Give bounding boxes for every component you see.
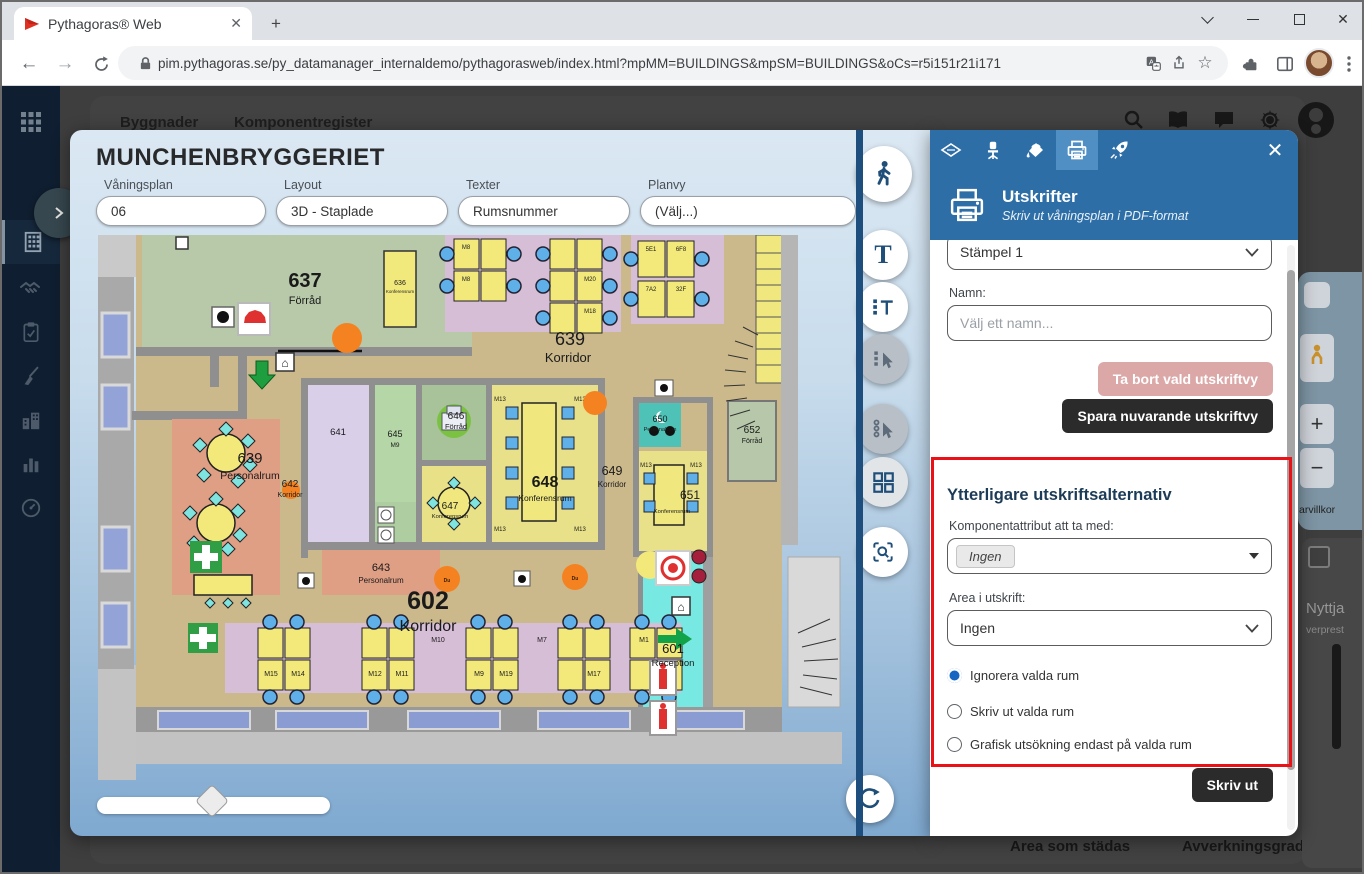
browser-titlebar: Pythagoras® Web ✕ + ✕ — [2, 2, 1362, 40]
reload-icon[interactable] — [88, 51, 114, 77]
svg-text:646: 646 — [448, 411, 465, 422]
walking-person-icon — [869, 159, 899, 189]
chevron-down-icon — [1245, 244, 1259, 260]
room-641 — [308, 385, 369, 542]
url-text: pim.pythagoras.se/py_datamanager_interna… — [158, 56, 1140, 71]
svg-text:Förråd: Förråd — [445, 422, 467, 431]
app-background: Byggnader Komponentregister Area som stä… — [2, 86, 1362, 872]
layout-selector: Layout 3D - Staplade — [276, 178, 448, 226]
svg-text:652: 652 — [744, 425, 761, 436]
rocket-icon — [1107, 138, 1131, 162]
svg-text:M8: M8 — [462, 277, 471, 283]
nav-tab-byggnader[interactable]: Byggnader — [120, 114, 198, 131]
print-panel: ✕ Utskrifter Skriv ut våningsplan i PDF-… — [930, 130, 1298, 836]
tab-furniture[interactable] — [972, 130, 1014, 170]
lock-icon — [132, 50, 158, 76]
svg-text:M9: M9 — [474, 671, 484, 678]
svg-text:5E1: 5E1 — [646, 247, 657, 253]
pythagoras-favicon — [24, 16, 40, 32]
svg-text:639: 639 — [555, 329, 585, 349]
panel-header: Utskrifter Skriv ut våningsplan i PDF-fo… — [930, 170, 1298, 240]
multi-select-button-disabled[interactable] — [858, 404, 908, 454]
tab-search-chevron-icon[interactable] — [1186, 2, 1228, 36]
svg-text:602: 602 — [407, 587, 449, 615]
panel-subtitle: Skriv ut våningsplan i PDF-format — [1002, 209, 1188, 223]
texts-selector-dropdown[interactable]: Rumsnummer — [458, 196, 630, 226]
area-label: Area i utskrift: — [949, 591, 1273, 605]
browser-tab[interactable]: Pythagoras® Web ✕ — [14, 7, 252, 40]
save-view-button[interactable]: Spara nuvarande utskriftvy — [1062, 399, 1273, 433]
grid-view-button[interactable] — [858, 457, 908, 507]
caret-down-icon — [1249, 553, 1259, 559]
svg-text:⌂: ⌂ — [281, 356, 288, 370]
minimize-button[interactable] — [1232, 2, 1274, 36]
svg-text:Förråd: Förråd — [742, 437, 763, 445]
apps-grid-icon[interactable] — [2, 100, 60, 144]
layout-selector-label: Layout — [284, 178, 448, 192]
circles-cursor-icon — [870, 416, 896, 442]
svg-text:⌂: ⌂ — [677, 600, 684, 614]
svg-text:636: 636 — [394, 280, 406, 287]
panel-scrollbar-thumb[interactable] — [1287, 270, 1295, 770]
forward-icon[interactable]: → — [52, 51, 78, 77]
svg-text:642: 642 — [282, 479, 299, 490]
sidebar-item-cleaning[interactable] — [2, 354, 60, 398]
component-attr-select[interactable]: Ingen — [947, 538, 1272, 574]
zoom-to-selection-button[interactable] — [858, 527, 908, 577]
paint-bucket-icon — [1023, 138, 1047, 162]
bookmark-star-icon[interactable]: ☆ — [1192, 50, 1218, 76]
dimmed-label-avverkning: Avverkningsgrad — [1182, 838, 1304, 855]
maximize-button[interactable] — [1278, 2, 1320, 36]
browser-window: Pythagoras® Web ✕ + ✕ ← → pim.pythagoras… — [0, 0, 1364, 874]
svg-text:M11: M11 — [395, 671, 408, 678]
tab-close-icon[interactable]: ✕ — [230, 15, 242, 32]
walkthrough-button[interactable] — [856, 146, 912, 202]
layers-diamond-icon — [939, 138, 963, 162]
map-checkbox[interactable] — [1304, 282, 1330, 308]
svg-text:Förråd: Förråd — [289, 295, 321, 307]
svg-text:M1: M1 — [639, 637, 649, 644]
svg-text:Personalrum: Personalrum — [644, 427, 677, 433]
close-window-button[interactable]: ✕ — [1322, 2, 1364, 36]
sidebar-item-handshake[interactable] — [2, 266, 60, 310]
svg-text:6F8: 6F8 — [676, 247, 687, 253]
svg-text:643: 643 — [372, 562, 390, 574]
svg-text:M20: M20 — [584, 277, 596, 283]
svg-text:641: 641 — [330, 427, 346, 438]
text-label-button[interactable]: T — [858, 230, 908, 280]
svg-text:M13: M13 — [690, 463, 702, 469]
name-label: Namn: — [949, 286, 1273, 300]
svg-text:601: 601 — [662, 641, 684, 656]
radio-graphic-selection[interactable]: Grafisk utsökning endast på valda rum — [947, 737, 1273, 752]
sidebar-item-gauge[interactable] — [2, 486, 60, 530]
svg-text:M9: M9 — [390, 442, 399, 449]
planview-selector-label: Planvy — [648, 178, 856, 192]
grid-icon — [870, 469, 896, 495]
radio-print-selected-rooms[interactable]: Skriv ut valda rum — [947, 704, 1273, 719]
radio-dot[interactable] — [947, 737, 962, 752]
floor-selector-dropdown[interactable]: 06 — [96, 196, 266, 226]
translate-icon[interactable]: A — [1140, 50, 1166, 76]
panel-title: Utskrifter — [1002, 187, 1188, 207]
svg-text:637: 637 — [288, 270, 321, 292]
svg-text:Personalrum: Personalrum — [220, 470, 280, 482]
svg-text:M17: M17 — [587, 671, 601, 678]
planview-selector-dropdown[interactable]: (Välj...) — [640, 196, 856, 226]
tab-rocket[interactable] — [1098, 130, 1140, 170]
svg-text:Du: Du — [444, 578, 451, 584]
svg-text:649: 649 — [602, 464, 623, 478]
svg-text:Korridor: Korridor — [400, 618, 458, 635]
focus-search-icon — [870, 539, 896, 565]
reset-rotation-button[interactable] — [846, 775, 894, 823]
svg-text:M15: M15 — [264, 671, 278, 678]
svg-text:M13: M13 — [574, 527, 586, 533]
component-attr-label: Komponentattribut att ta med: — [949, 519, 1273, 533]
texts-selector: Texter Rumsnummer — [458, 178, 630, 226]
svg-text:Konferensrum: Konferensrum — [654, 509, 691, 515]
kebab-menu-icon[interactable] — [1336, 51, 1362, 77]
room-650 — [639, 403, 681, 447]
floor-selector-label: Våningsplan — [104, 178, 266, 192]
svg-text:M19: M19 — [499, 671, 513, 678]
svg-text:Konferensrum: Konferensrum — [518, 493, 571, 503]
svg-text:Du: Du — [572, 576, 579, 582]
list-text-icon — [870, 294, 896, 320]
list-cursor-icon — [870, 346, 896, 372]
svg-text:Korridor: Korridor — [598, 480, 627, 489]
sidebar-item-clipboard[interactable] — [2, 310, 60, 354]
radio-ignore-selected-rooms[interactable]: Ignorera valda rum — [947, 668, 1273, 683]
new-tab-button[interactable]: + — [264, 12, 288, 36]
layout-selector-dropdown[interactable]: 3D - Staplade — [276, 196, 448, 226]
extensions-puzzle-icon[interactable] — [1238, 51, 1264, 77]
svg-text:M10: M10 — [431, 637, 445, 644]
svg-text:Korridor: Korridor — [545, 350, 592, 365]
tab-paint[interactable] — [1014, 130, 1056, 170]
printer-icon — [1065, 138, 1089, 162]
nav-tab-komponentregister[interactable]: Komponentregister — [234, 114, 372, 131]
text-icon: T — [874, 240, 891, 270]
map-zoom-in-button[interactable]: + — [1300, 404, 1334, 444]
texts-selector-label: Texter — [466, 178, 630, 192]
svg-text:647: 647 — [442, 501, 459, 512]
panel-body: Stämpel 1 Namn: Ta bort vald utskriftvy … — [930, 240, 1298, 836]
svg-text:Konferensrum: Konferensrum — [386, 289, 415, 294]
panel-close-icon[interactable]: ✕ — [1252, 130, 1298, 170]
panel-divider — [856, 130, 863, 836]
svg-text:M13: M13 — [640, 463, 652, 469]
delete-view-button[interactable]: Ta bort vald utskriftvy — [1098, 362, 1273, 396]
svg-text:M18: M18 — [584, 309, 596, 315]
browser-navbar: ← → pim.pythagoras.se/py_datamanager_int… — [2, 40, 1362, 86]
url-bar[interactable]: pim.pythagoras.se/py_datamanager_interna… — [118, 46, 1228, 80]
svg-text:M8: M8 — [462, 245, 471, 251]
area-select[interactable]: Ingen — [947, 610, 1272, 646]
print-button[interactable]: Skriv ut — [1192, 768, 1273, 802]
svg-text:648: 648 — [532, 474, 559, 491]
svg-text:639: 639 — [237, 450, 262, 467]
tab-print-active[interactable] — [1056, 130, 1098, 170]
svg-text:Personalrum: Personalrum — [358, 576, 404, 585]
svg-text:651: 651 — [680, 488, 700, 502]
svg-text:32F: 32F — [676, 287, 687, 293]
attr-chip: Ingen — [956, 545, 1015, 568]
svg-text:M13: M13 — [494, 527, 506, 533]
svg-text:Reception: Reception — [652, 658, 695, 669]
dimmed-right-card: Nyttja verprest — [1302, 538, 1362, 868]
browser-profile-avatar[interactable] — [1304, 48, 1334, 78]
sidebar-item-charts[interactable] — [2, 442, 60, 486]
name-input[interactable] — [947, 305, 1272, 341]
tab-plan-layers[interactable] — [930, 130, 972, 170]
svg-text:M7: M7 — [537, 637, 547, 644]
pegman-icon[interactable] — [1300, 334, 1334, 382]
radio-dot[interactable] — [947, 668, 962, 683]
additional-options-heading: Ytterligare utskriftsalternativ — [947, 486, 1273, 505]
svg-text:M13: M13 — [494, 397, 506, 403]
building-title: MUNCHENBRYGGERIET — [96, 144, 385, 172]
chair-icon — [982, 139, 1004, 161]
dimmed-text-verprest: verprest — [1306, 624, 1344, 636]
chevron-down-icon — [1245, 620, 1259, 636]
map-terms-text: arvillkor — [1299, 504, 1335, 516]
dimmed-text-nyttja: Nyttja — [1306, 600, 1344, 617]
printer-large-icon — [946, 184, 988, 226]
side-panel-icon[interactable] — [1272, 51, 1298, 77]
list-select-button-disabled[interactable] — [858, 334, 908, 384]
floorplan-svg[interactable]: M13M13M13M13M13M13⌂DuDu⌂637Förråd636Konf… — [98, 235, 848, 780]
svg-text:M12: M12 — [368, 671, 382, 678]
dimmed-map-widget: + − — [1298, 272, 1362, 530]
share-icon[interactable] — [1166, 50, 1192, 76]
svg-text:Korridor: Korridor — [278, 492, 304, 499]
radio-dot[interactable] — [947, 704, 962, 719]
svg-text:650: 650 — [652, 414, 667, 424]
svg-text:Konferensrum: Konferensrum — [432, 514, 469, 520]
svg-text:7A2: 7A2 — [646, 287, 657, 293]
dimmed-checkbox[interactable] — [1308, 546, 1330, 568]
app-user-avatar[interactable] — [1298, 102, 1334, 138]
svg-text:M14: M14 — [291, 671, 305, 678]
list-text-button[interactable] — [858, 282, 908, 332]
panel-tab-bar: ✕ — [930, 130, 1298, 170]
floorplan-dialog: MUNCHENBRYGGERIET Våningsplan 06 Layout … — [70, 130, 930, 836]
back-icon[interactable]: ← — [16, 51, 42, 77]
dimmed-label-area: Area som städas — [1010, 838, 1130, 855]
map-zoom-out-button[interactable]: − — [1300, 448, 1334, 488]
tab-title: Pythagoras® Web — [48, 16, 222, 32]
planview-selector: Planvy (Välj...) — [640, 178, 856, 226]
floor-selector: Våningsplan 06 — [96, 178, 266, 226]
dimmed-scrollbar-thumb[interactable] — [1332, 644, 1341, 749]
sidebar-item-city[interactable] — [2, 398, 60, 442]
svg-text:645: 645 — [387, 429, 402, 439]
